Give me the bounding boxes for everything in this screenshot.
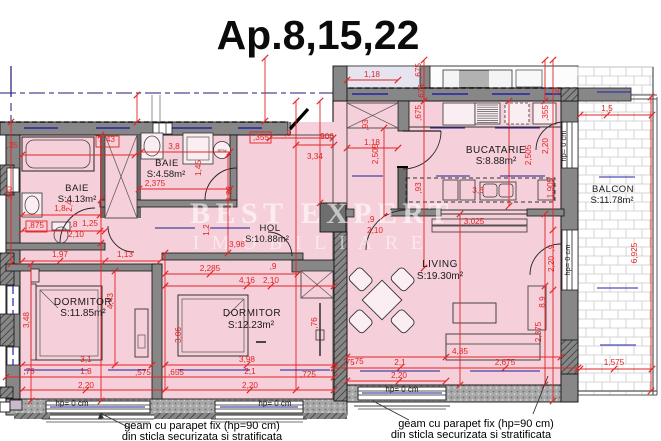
svg-text:1,43: 1,43 — [99, 135, 115, 144]
svg-text:4,85: 4,85 — [452, 347, 468, 356]
svg-text:,35: ,35 — [6, 141, 18, 150]
svg-text:1,5: 1,5 — [601, 104, 613, 113]
svg-text:2,285: 2,285 — [200, 264, 221, 273]
svg-text:3,6: 3,6 — [472, 186, 484, 195]
svg-text:S:19.30m²: S:19.30m² — [417, 271, 464, 282]
svg-text:2,10: 2,10 — [68, 230, 84, 239]
svg-text:1,2: 1,2 — [202, 224, 211, 236]
svg-text:hp= 0 cm: hp= 0 cm — [563, 244, 572, 275]
svg-text:3,8: 3,8 — [168, 142, 180, 151]
svg-text:S:11.85m²: S:11.85m² — [60, 308, 106, 319]
svg-text:3,34: 3,34 — [307, 152, 323, 161]
svg-text:hp= 0 cm: hp= 0 cm — [559, 130, 568, 161]
svg-text:,655: ,655 — [168, 368, 184, 377]
svg-text:DORMITOR: DORMITOR — [223, 308, 281, 319]
svg-text:3,98: 3,98 — [229, 240, 245, 249]
svg-text:8,9: 8,9 — [538, 296, 547, 308]
svg-text:1,575: 1,575 — [604, 358, 625, 367]
svg-text:3,06: 3,06 — [174, 327, 183, 343]
svg-text:S:11.78m²: S:11.78m² — [590, 195, 633, 206]
svg-text:3,98: 3,98 — [239, 355, 255, 364]
svg-text:hp= 0 cm: hp= 0 cm — [385, 385, 418, 394]
svg-text:,75: ,75 — [23, 367, 35, 376]
svg-text:,9: ,9 — [270, 262, 277, 271]
svg-text:3,1: 3,1 — [80, 355, 92, 364]
svg-text:,9: ,9 — [368, 215, 375, 224]
svg-text:S:12.23m²: S:12.23m² — [228, 320, 275, 331]
svg-text:2,375: 2,375 — [534, 321, 543, 342]
svg-text:,76: ,76 — [310, 317, 319, 329]
svg-text:2,20: 2,20 — [78, 381, 94, 390]
svg-text:,9: ,9 — [553, 87, 560, 96]
svg-text:2,82: 2,82 — [225, 186, 234, 202]
svg-text:2,505: 2,505 — [371, 143, 380, 164]
svg-text:S:10.88m²: S:10.88m² — [245, 234, 289, 245]
svg-text:1,8: 1,8 — [80, 367, 92, 376]
svg-text:3,48: 3,48 — [22, 312, 31, 328]
svg-text:2,10: 2,10 — [263, 276, 279, 285]
svg-text:1,25: 1,25 — [82, 219, 98, 228]
svg-text:,575: ,575 — [135, 368, 151, 377]
svg-text:2,375: 2,375 — [145, 179, 166, 188]
svg-text:320: 320 — [5, 186, 14, 200]
svg-text:2,1: 2,1 — [244, 367, 256, 376]
svg-text:BALCON: BALCON — [592, 184, 634, 195]
svg-text:1,45: 1,45 — [194, 160, 203, 176]
svg-text:2,20: 2,20 — [242, 381, 258, 390]
svg-text:,93: ,93 — [414, 182, 423, 194]
svg-text:1,18: 1,18 — [364, 70, 380, 79]
svg-text:BUCATARIE: BUCATARIE — [466, 145, 526, 156]
svg-text:906: 906 — [320, 132, 334, 141]
svg-text:1,905: 1,905 — [546, 177, 555, 198]
svg-text:din sticla securizata si strat: din sticla securizata si stratificata — [391, 429, 552, 441]
svg-text:DORMITOR: DORMITOR — [54, 297, 112, 308]
svg-text:hp= 0 cm: hp= 0 cm — [55, 399, 88, 408]
svg-text:6,925: 6,925 — [630, 242, 639, 263]
svg-text:,675: ,675 — [414, 63, 423, 79]
svg-text:LIVING: LIVING — [422, 259, 458, 270]
svg-text:BAIE: BAIE — [155, 158, 179, 169]
svg-text:1,97: 1,97 — [52, 250, 68, 259]
svg-text:2,20: 2,20 — [547, 256, 556, 272]
svg-text:,675: ,675 — [414, 105, 423, 121]
svg-text:,8: ,8 — [71, 220, 78, 229]
svg-text:2,10: 2,10 — [367, 226, 383, 235]
svg-text:1,13: 1,13 — [117, 250, 133, 259]
svg-text:,75: ,75 — [352, 357, 364, 366]
svg-text:S:4.58m²: S:4.58m² — [147, 169, 186, 180]
svg-text:,93: ,93 — [361, 119, 370, 131]
svg-text:,355: ,355 — [253, 133, 269, 142]
svg-text:,675: ,675 — [417, 84, 426, 100]
svg-text:,355: ,355 — [541, 105, 550, 121]
svg-text:2,20: 2,20 — [391, 371, 407, 380]
svg-text:4,16: 4,16 — [239, 276, 255, 285]
svg-text:,875: ,875 — [28, 221, 44, 230]
svg-text:BAIE: BAIE — [65, 183, 89, 194]
svg-text:Ap.8,15,22: Ap.8,15,22 — [217, 12, 420, 58]
svg-text:2,1: 2,1 — [394, 358, 406, 367]
svg-text:HOL: HOL — [259, 223, 280, 234]
svg-text:2,675: 2,675 — [495, 358, 516, 367]
svg-text:,725: ,725 — [300, 370, 316, 379]
svg-text:S:8.88m²: S:8.88m² — [476, 156, 517, 167]
svg-text:,9: ,9 — [547, 244, 556, 251]
svg-text:hp= 0 cm: hp= 0 cm — [258, 399, 291, 408]
svg-text:din sticla securizata si strat: din sticla securizata si stratificata — [122, 431, 283, 441]
svg-text:S:4.13m²: S:4.13m² — [58, 194, 97, 205]
svg-text:3,025: 3,025 — [464, 217, 485, 226]
svg-text:2,20: 2,20 — [541, 138, 550, 154]
svg-text:,9: ,9 — [285, 129, 292, 138]
